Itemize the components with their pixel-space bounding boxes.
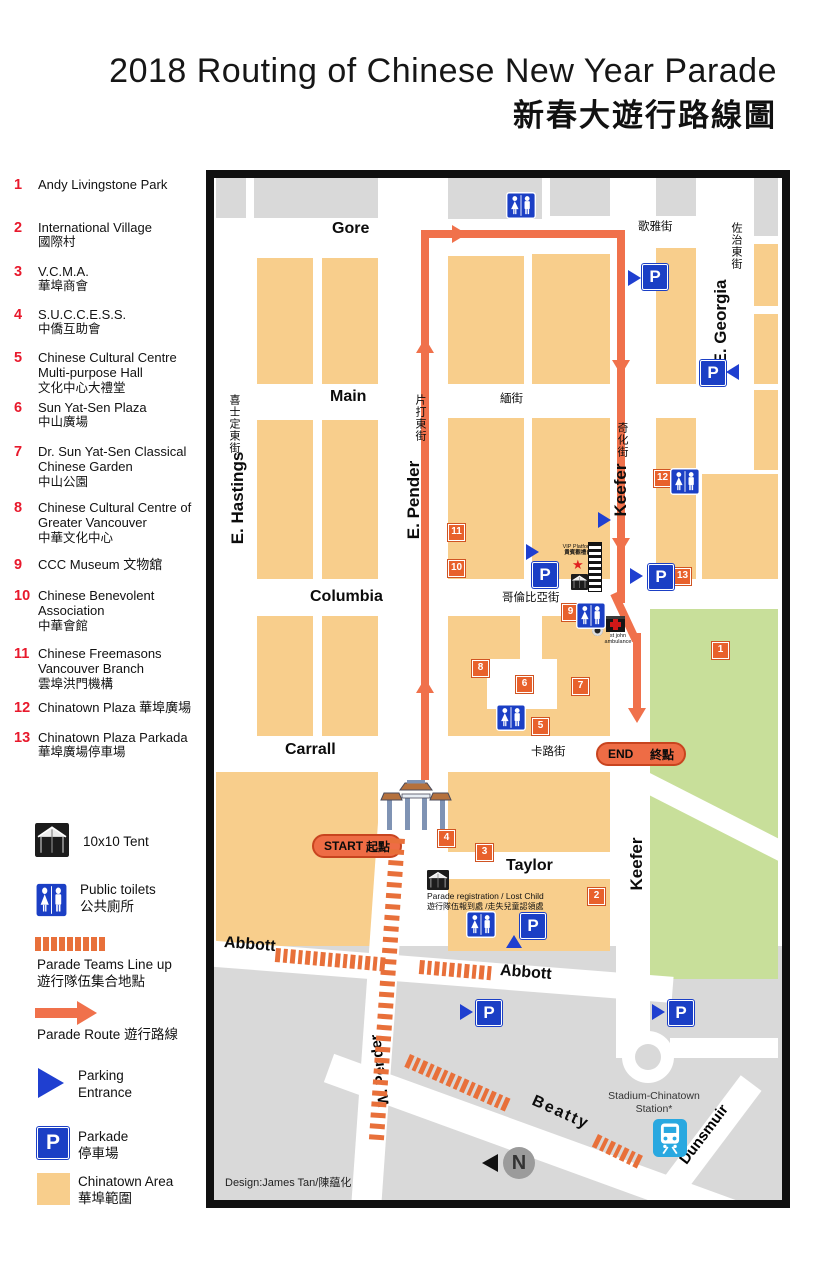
parkade-icon: P	[37, 1127, 69, 1159]
parkade-icon: P	[668, 1000, 694, 1026]
legend-lineup-label: Parade Teams Line up 遊行隊伍集合地點	[37, 957, 172, 991]
parkade-icon: P	[648, 564, 674, 590]
legend-numbered-list: 1 Andy Livingstone Park 2 International …	[0, 0, 210, 800]
lineup-dashes-icon	[35, 937, 107, 951]
legend-item-zh: 華埠廣場停車場	[38, 745, 200, 760]
legend-item-text: V.C.M.A.華埠商會	[38, 264, 200, 294]
toilets-icon	[496, 704, 526, 731]
legend-item-number: 4	[10, 307, 38, 337]
chinatown-area-icon	[37, 1173, 70, 1205]
legend-item-text: Andy Livingstone Park	[38, 177, 200, 193]
legend-item-8: 8 Chinese Cultural Centre of Greater Van…	[10, 500, 200, 545]
legend-item-zh: 文化中心大禮堂	[38, 381, 200, 396]
legend-item-text: Chinese Cultural Centre Multi-purpose Ha…	[38, 350, 200, 395]
parking-entrance-icon	[506, 935, 522, 948]
map-marker-4: 4	[438, 830, 455, 847]
legend-item-6: 6 Sun Yat-Sen Plaza中山廣場	[10, 400, 200, 430]
legend-item-text: S.U.C.C.E.S.S.中僑互助會	[38, 307, 200, 337]
legend-item-zh: 雲埠洪門機構	[38, 677, 200, 692]
legend-item-text: Chinese Benevolent Association中華會館	[38, 588, 200, 633]
legend-item-1: 1 Andy Livingstone Park	[10, 177, 200, 193]
parkade-icon: P	[642, 264, 668, 290]
legend-item-10: 10 Chinese Benevolent Association中華會館	[10, 588, 200, 633]
lineup-dashes	[369, 838, 405, 1146]
lineup-dashes	[275, 948, 388, 972]
legend-item-text: Chinese Cultural Centre of Greater Vanco…	[38, 500, 200, 545]
parking-entrance-icon	[38, 1068, 64, 1098]
lineup-dashes	[592, 1134, 645, 1170]
legend-item-zh: 中山公園	[38, 475, 200, 490]
parking-entrance-icon	[628, 270, 641, 286]
legend-item-number: 8	[10, 500, 38, 545]
legend-tent-label: 10x10 Tent	[83, 834, 149, 851]
legend-item-number: 5	[10, 350, 38, 395]
legend-item-13: 13 Chinatown Plaza Parkada華埠廣場停車場	[10, 730, 200, 760]
legend-toilets-label: Public toilets 公共廁所	[80, 882, 156, 916]
parkade-icon: P	[520, 913, 546, 939]
legend-item-zh: 中僑互助會	[38, 322, 200, 337]
toilets-icon	[466, 911, 496, 938]
legend-parking-label: Parking Entrance	[78, 1068, 132, 1102]
legend-item-3: 3 V.C.M.A.華埠商會	[10, 264, 200, 294]
legend-item-text: Chinatown Plaza 華埠廣場	[38, 700, 200, 716]
legend-item-number: 13	[10, 730, 38, 760]
legend-item-number: 11	[10, 646, 38, 691]
parking-entrance-icon	[598, 512, 611, 528]
map-marker-2: 2	[588, 888, 605, 905]
toilets-icon	[670, 468, 700, 495]
legend-item-number: 10	[10, 588, 38, 633]
legend-item-zh: 中華文化中心	[38, 531, 200, 546]
parkade-icon: P	[532, 562, 558, 588]
map-marker-7: 7	[572, 678, 589, 695]
page: { "title": {"en": "2018 Routing of Chine…	[0, 0, 827, 1280]
legend-item-number: 12	[10, 700, 38, 716]
parking-entrance-icon	[630, 568, 643, 584]
page-title-chinese: 新春大遊行路線圖	[513, 90, 777, 135]
legend-parkade-label: Parkade 停車場	[78, 1129, 128, 1163]
map-marker-12: 12	[654, 470, 671, 487]
legend-route-label: Parade Route 遊行路線	[37, 1027, 178, 1044]
parkade-icon: P	[476, 1000, 502, 1026]
legend-item-text: International Village國際村	[38, 220, 200, 250]
map-marker-6: 6	[516, 676, 533, 693]
legend-item-text: Chinatown Plaza Parkada華埠廣場停車場	[38, 730, 200, 760]
legend-item-text: Dr. Sun Yat-Sen Classical Chinese Garden…	[38, 444, 200, 489]
legend-item-number: 6	[10, 400, 38, 430]
toilets-icon	[576, 602, 606, 629]
route-arrow-icon	[35, 1008, 77, 1018]
map-marker-3: 3	[476, 844, 493, 861]
map-marker-5: 5	[532, 718, 549, 735]
legend-item-12: 12 Chinatown Plaza 華埠廣場	[10, 700, 200, 716]
generated-icons-layer: 12345678910111213 PPPPPPP	[214, 178, 782, 1200]
legend-item-9: 9 CCC Museum 文物舘	[10, 557, 200, 573]
parkade-icon: P	[700, 360, 726, 386]
tent-icon	[35, 823, 69, 857]
legend-item-4: 4 S.U.C.C.E.S.S.中僑互助會	[10, 307, 200, 337]
legend-item-zh: 中山廣場	[38, 415, 200, 430]
route-arrow-head	[77, 1001, 97, 1025]
legend-item-11: 11 Chinese Freemasons Vancouver Branch雲埠…	[10, 646, 200, 691]
legend-item-text: CCC Museum 文物舘	[38, 557, 200, 573]
legend-item-2: 2 International Village國際村	[10, 220, 200, 250]
parade-map: END終點 START起點 Gore 歌雅街 Main 緬街 Columbia …	[206, 170, 790, 1208]
toilets-icon	[506, 192, 536, 219]
parking-entrance-icon	[460, 1004, 473, 1020]
map-marker-10: 10	[448, 560, 465, 577]
legend-item-number: 9	[10, 557, 38, 573]
legend-area-label: Chinatown Area 華埠範圍	[78, 1174, 173, 1208]
parking-entrance-icon	[652, 1004, 665, 1020]
legend-item-text: Sun Yat-Sen Plaza中山廣場	[38, 400, 200, 430]
legend-item-number: 7	[10, 444, 38, 489]
map-marker-1: 1	[712, 642, 729, 659]
lineup-dashes	[404, 1054, 512, 1113]
parking-entrance-icon	[726, 364, 739, 380]
legend-item-zh: 國際村	[38, 235, 200, 250]
legend-item-5: 5 Chinese Cultural Centre Multi-purpose …	[10, 350, 200, 395]
map-marker-13: 13	[674, 568, 691, 585]
parking-entrance-icon	[526, 544, 539, 560]
legend-item-number: 2	[10, 220, 38, 250]
legend-item-zh: 中華會館	[38, 619, 200, 634]
toilets-icon	[35, 882, 68, 918]
legend-item-number: 3	[10, 264, 38, 294]
map-marker-8: 8	[472, 660, 489, 677]
legend-item-7: 7 Dr. Sun Yat-Sen Classical Chinese Gard…	[10, 444, 200, 489]
legend-item-number: 1	[10, 177, 38, 193]
legend-item-text: Chinese Freemasons Vancouver Branch雲埠洪門機…	[38, 646, 200, 691]
map-marker-11: 11	[448, 524, 465, 541]
lineup-dashes	[419, 960, 495, 980]
legend-item-zh: 華埠商會	[38, 279, 200, 294]
